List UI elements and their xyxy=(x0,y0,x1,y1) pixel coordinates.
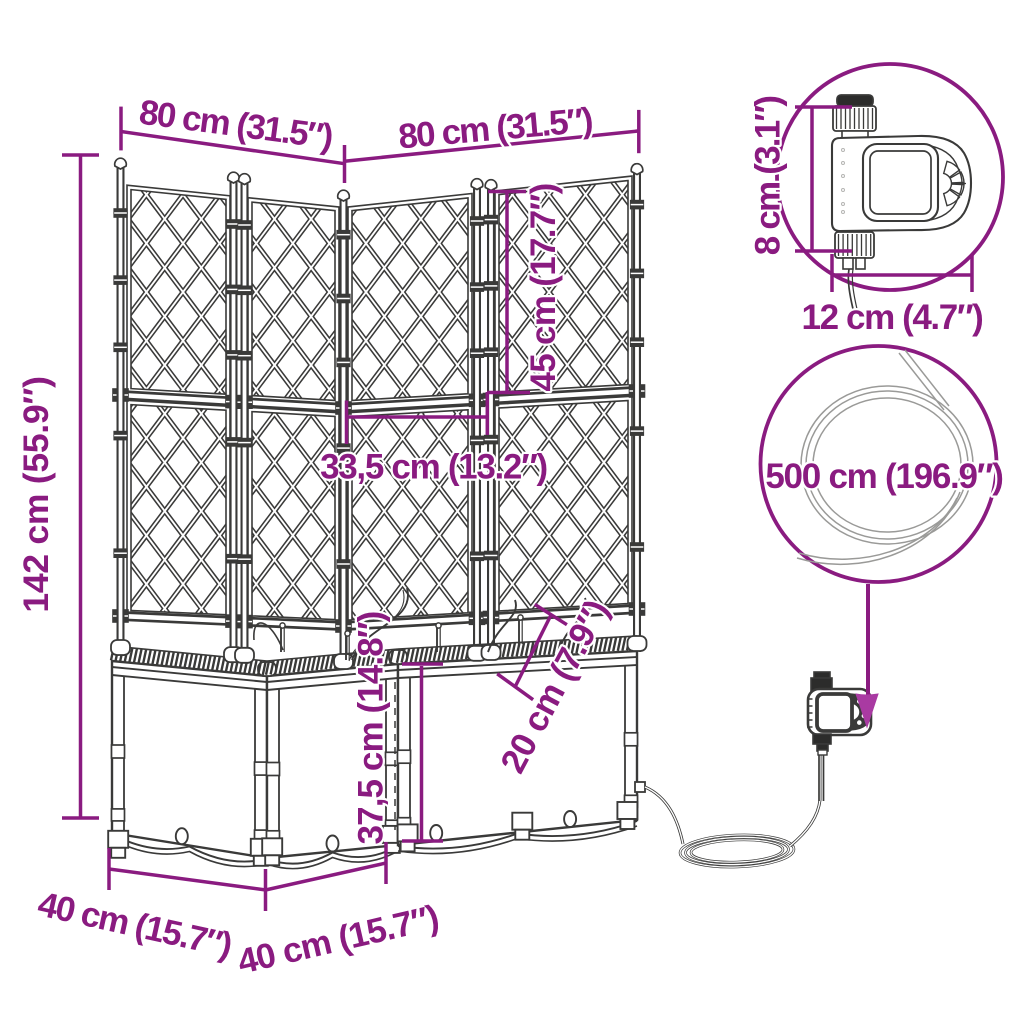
svg-text:33,5 cm (13.2″): 33,5 cm (13.2″) xyxy=(320,447,547,486)
svg-text:142 cm (55.9″): 142 cm (55.9″) xyxy=(16,376,56,612)
svg-text:8 cm (3.1″): 8 cm (3.1″) xyxy=(749,97,788,256)
svg-text:45 cm (17.7″): 45 cm (17.7″) xyxy=(524,183,563,391)
svg-text:37,5 cm (14.8″): 37,5 cm (14.8″) xyxy=(352,612,391,845)
svg-text:12 cm (4.7″): 12 cm (4.7″) xyxy=(802,298,983,337)
svg-text:500 cm (196.9″): 500 cm (196.9″) xyxy=(765,457,1002,496)
